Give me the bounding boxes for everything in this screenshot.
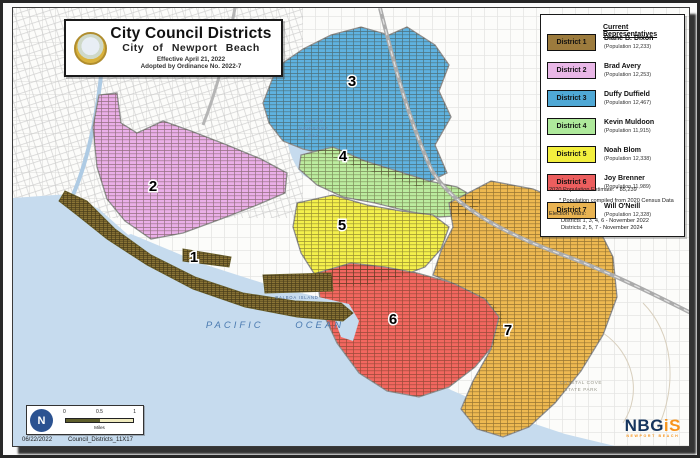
footer-meta: 06/22/2022 Council_Districts_11X17 [22,437,133,443]
election-years-header: Election Years: [549,211,674,218]
district-1-number: 1 [190,249,198,266]
census-source-note: * Population compiled from 2020 Census D… [559,198,674,205]
district-4-number: 4 [339,148,348,165]
scale-tick-05: 0.5 [96,409,103,415]
rep-name: Duffy Duffield [604,91,651,100]
svg-text:UPPER: UPPER [304,119,325,124]
legend-row-district-1: District 1 Diane B. Dixon (Population 12… [547,34,654,51]
balboa-island-label: BALBOA ISLAND [275,295,318,300]
legend-row-district-2: District 2 Brad Avery (Population 12,253… [547,62,654,79]
legend-row-district-3: District 3 Duffy Duffield (Population 12… [547,90,654,107]
rep-population: (Population 12,467) [604,100,651,107]
rep-population: (Population 12,233) [604,44,653,51]
nbgis-subtext: NEWPORT BEACH [625,435,681,439]
svg-text:STATE PARK: STATE PARK [564,387,598,392]
district-2-swatch: District 2 [547,62,596,79]
rep-name: Kevin Muldoon [604,119,654,128]
population-estimate-note: 2020 Population Estimate: * 85,239 [549,187,674,194]
district-3-swatch: District 3 [547,90,596,107]
title-box: City Council Districts City of Newport B… [64,19,283,77]
map-canvas: PACIFIC OCEAN UPPER NEWPORT BAY BALBOA I… [12,7,690,447]
nbgis-wordmark: NBGiS [625,417,681,434]
rep-name: Brad Avery [604,63,651,72]
scale-tick-0: 0 [63,409,66,415]
map-date: 06/22/2022 [22,437,52,443]
district-1-swatch: District 1 [547,34,596,51]
svg-text:CRYSTAL COVE: CRYSTAL COVE [560,380,602,385]
district-5-number: 5 [338,217,346,234]
election-years-2022: Districts 1, 3, 4, 6 - November 2022 [561,218,674,225]
scale-tick-1: 1 [133,409,136,415]
nbgis-logo: NBGiS NEWPORT BEACH [625,417,681,439]
rep-name: Joy Brenner [604,175,651,184]
legend-notes: 2020 Population Estimate: * 85,239 * Pop… [549,187,674,232]
pacific-ocean-label: PACIFIC OCEAN [206,320,344,331]
map-document-page: PACIFIC OCEAN UPPER NEWPORT BAY BALBOA I… [0,0,700,458]
district-6-number: 6 [389,311,397,328]
ordinance-note: Adopted by Ordinance No. 2022-7 [107,64,275,71]
district-3-number: 3 [348,73,356,90]
scale-bar-box: N 0 0.5 1 Miles [26,405,144,435]
legend-box: Current Representatives District 1 Diane… [540,14,685,237]
rep-population: (Population 12,253) [604,72,651,79]
scale-unit-label: Miles [65,425,134,430]
svg-text:NEWPORT: NEWPORT [299,126,329,131]
rep-population: (Population 11,915) [604,128,654,135]
district-4-swatch: District 4 [547,118,596,135]
map-subtitle: City of Newport Beach [107,43,275,55]
scale-bar [65,418,134,423]
map-title: City Council Districts [107,25,275,42]
district-7-number: 7 [504,322,512,339]
map-filename: Council_Districts_11X17 [68,437,133,443]
legend-row-district-5: District 5 Noah Blom (Population 12,338) [547,146,654,163]
scale-ticks: 0 0.5 1 [63,409,136,415]
city-seal-icon [74,32,107,65]
north-arrow-icon: N [30,409,53,432]
district-5-swatch: District 5 [547,146,596,163]
svg-text:BAY: BAY [308,133,320,138]
legend-row-district-4: District 4 Kevin Muldoon (Population 11,… [547,118,654,135]
district-2-number: 2 [149,178,157,195]
election-years-2024: Districts 2, 5, 7 - November 2024 [561,225,674,232]
rep-name: Diane B. Dixon [604,35,653,44]
rep-population: (Population 12,338) [604,156,651,163]
rep-name: Noah Blom [604,147,651,156]
